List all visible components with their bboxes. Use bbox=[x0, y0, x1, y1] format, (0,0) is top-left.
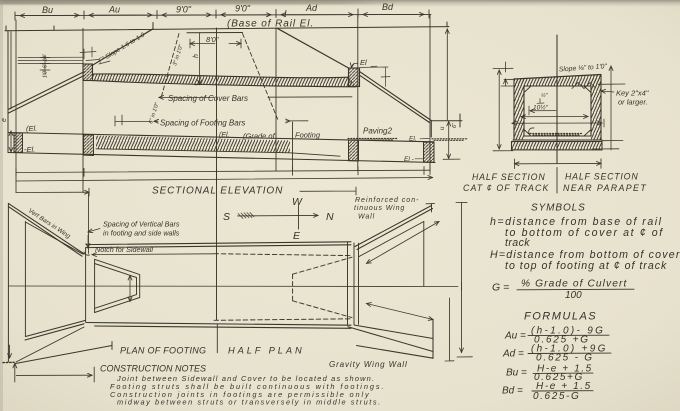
svg-text:SYMBOLS: SYMBOLS bbox=[531, 203, 586, 214]
svg-text:% Grade of Culvert: % Grade of Culvert bbox=[521, 279, 627, 290]
svg-text:1'0" 6" 10": 1'0" 6" 10" bbox=[43, 53, 49, 78]
svg-text:El: El bbox=[360, 58, 367, 67]
svg-text:10½": 10½" bbox=[533, 104, 549, 112]
svg-text:Wall: Wall bbox=[358, 213, 375, 220]
svg-text:Spacing of Footing Bars: Spacing of Footing Bars bbox=[160, 119, 245, 128]
svg-text:or larger.: or larger. bbox=[618, 98, 648, 107]
svg-text:to top of footing at ¢ of trac: to top of footing at ¢ of track bbox=[505, 260, 667, 272]
svg-text:0.625-G: 0.625-G bbox=[533, 391, 580, 402]
svg-text:HALF SECTION: HALF SECTION bbox=[565, 172, 638, 182]
svg-text:CAT ¢ OF TRACK: CAT ¢ OF TRACK bbox=[463, 183, 549, 193]
svg-text:Notch for Sidewall: Notch for Sidewall bbox=[95, 245, 153, 254]
svg-text:track: track bbox=[505, 237, 530, 249]
svg-text:in footing and side walls: in footing and side walls bbox=[103, 229, 180, 238]
svg-text:Gravity Wing Wall: Gravity Wing Wall bbox=[329, 360, 408, 369]
svg-text:Paving2: Paving2 bbox=[363, 127, 392, 136]
svg-text:e: e bbox=[1, 118, 8, 122]
svg-text:Bu =: Bu = bbox=[506, 368, 527, 379]
svg-text:Key 2"x4": Key 2"x4" bbox=[616, 89, 649, 98]
svg-text:G =: G = bbox=[492, 282, 509, 294]
svg-text:Reinforced con-: Reinforced con- bbox=[355, 197, 419, 204]
svg-text:9'0": 9'0" bbox=[235, 4, 251, 14]
svg-text:-El.: -El. bbox=[24, 145, 35, 154]
svg-text:El.: El. bbox=[409, 136, 417, 143]
svg-text:h: h bbox=[193, 54, 200, 58]
svg-text:NEAR PARAPET: NEAR PARAPET bbox=[563, 183, 647, 193]
svg-text:Ad =: Ad = bbox=[502, 349, 524, 360]
svg-text:Ad: Ad bbox=[305, 3, 318, 13]
svg-text:El -: El - bbox=[404, 156, 415, 163]
svg-text:Bd =: Bd = bbox=[502, 386, 523, 397]
svg-text:0.625 - G: 0.625 - G bbox=[536, 352, 594, 363]
svg-text:9'0": 9'0" bbox=[176, 5, 192, 15]
svg-text:W: W bbox=[292, 196, 303, 208]
svg-text:(El.: (El. bbox=[26, 124, 37, 133]
svg-text:Au =: Au = bbox=[504, 331, 526, 342]
svg-text:midway between struts or trans: midway between struts or transversely in… bbox=[117, 398, 382, 407]
svg-text:(Base of Rail El.: (Base of Rail El. bbox=[227, 19, 314, 30]
svg-text:HALF PLAN: HALF PLAN bbox=[228, 346, 305, 356]
svg-text:Bu: Bu bbox=[42, 5, 53, 15]
svg-text:Au: Au bbox=[108, 5, 120, 15]
svg-text:Footing: Footing bbox=[295, 131, 321, 140]
svg-text:S: S bbox=[223, 211, 230, 223]
svg-text:HALF SECTION: HALF SECTION bbox=[472, 172, 545, 182]
svg-text:CONSTRUCTION NOTES: CONSTRUCTION NOTES bbox=[100, 364, 206, 374]
svg-text:Bd: Bd bbox=[382, 2, 394, 12]
svg-text:E: E bbox=[293, 230, 301, 242]
svg-text:PLAN OF FOOTING: PLAN OF FOOTING bbox=[120, 346, 206, 356]
svg-text:100: 100 bbox=[565, 290, 582, 301]
svg-text:FORMULAS: FORMULAS bbox=[524, 311, 597, 323]
svg-text:SECTIONAL ELEVATION: SECTIONAL ELEVATION bbox=[152, 186, 283, 197]
svg-text:N: N bbox=[326, 211, 334, 223]
svg-text:½": ½" bbox=[541, 92, 549, 99]
svg-text:(El.: (El. bbox=[219, 132, 230, 139]
svg-text:Spacing of Vertical Bars: Spacing of Vertical Bars bbox=[103, 220, 180, 229]
svg-text:tinuous Wing: tinuous Wing bbox=[354, 205, 405, 212]
svg-text:(Grade of: (Grade of bbox=[243, 132, 276, 141]
svg-text:Spacing of Cover Bars: Spacing of Cover Bars bbox=[168, 94, 248, 103]
